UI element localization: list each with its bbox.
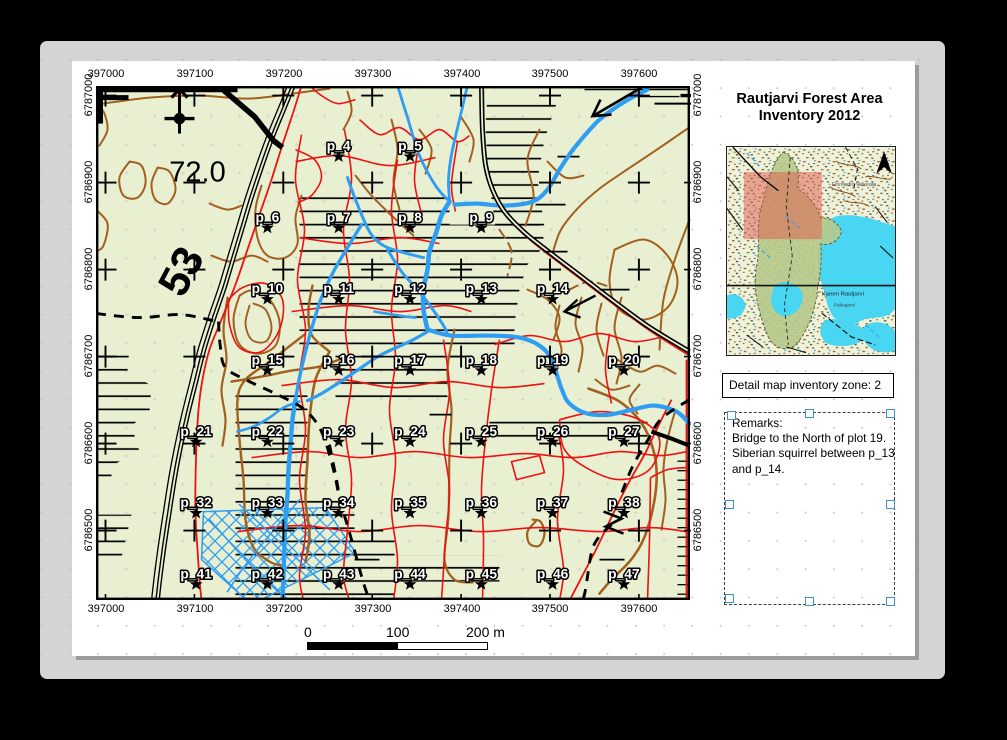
svg-text:p_36: p_36	[466, 495, 498, 510]
svg-text:p_38: p_38	[608, 495, 640, 510]
svg-text:Paikajarvi: Paikajarvi	[834, 302, 855, 308]
svg-text:p_16: p_16	[323, 353, 355, 368]
svg-text:p_37: p_37	[537, 495, 569, 510]
svg-text:p_22: p_22	[252, 424, 284, 439]
svg-text:p_45: p_45	[466, 566, 498, 581]
svg-text:p_13: p_13	[466, 281, 498, 296]
svg-text:p_26: p_26	[537, 424, 569, 439]
svg-text:p_44: p_44	[394, 566, 426, 581]
svg-text:p_35: p_35	[394, 495, 426, 510]
svg-text:p_10: p_10	[252, 281, 284, 296]
svg-text:p_24: p_24	[394, 424, 426, 439]
svg-text:p_46: p_46	[537, 566, 569, 581]
svg-text:p_6: p_6	[256, 210, 280, 225]
svg-text:Finnradio Valkeala: Finnradio Valkeala	[832, 182, 877, 188]
svg-text:p_7: p_7	[327, 210, 351, 225]
svg-text:p_4: p_4	[327, 139, 351, 154]
svg-text:p_32: p_32	[180, 495, 212, 510]
svg-text:p_34: p_34	[323, 495, 355, 510]
svg-text:p_41: p_41	[180, 566, 212, 581]
svg-text:p_42: p_42	[252, 566, 284, 581]
svg-text:p_25: p_25	[466, 424, 498, 439]
svg-text:p_8: p_8	[398, 210, 422, 225]
svg-text:p_5: p_5	[398, 139, 422, 154]
svg-text:p_23: p_23	[323, 424, 355, 439]
svg-text:p_27: p_27	[608, 424, 640, 439]
svg-text:p_21: p_21	[180, 424, 212, 439]
svg-text:p_43: p_43	[323, 566, 355, 581]
svg-text:p_18: p_18	[466, 353, 498, 368]
svg-text:p_14: p_14	[537, 281, 569, 296]
svg-text:p_47: p_47	[608, 566, 640, 581]
svg-text:Kanen Rautjarvi: Kanen Rautjarvi	[822, 291, 864, 297]
svg-text:p_20: p_20	[608, 353, 640, 368]
svg-text:72.0: 72.0	[169, 157, 225, 189]
svg-text:p_15: p_15	[252, 353, 284, 368]
svg-text:p_33: p_33	[252, 495, 284, 510]
svg-text:p_12: p_12	[394, 281, 426, 296]
svg-text:p_9: p_9	[469, 210, 493, 225]
svg-text:p_17: p_17	[394, 353, 426, 368]
svg-text:p_11: p_11	[323, 281, 354, 296]
svg-text:p_19: p_19	[537, 353, 569, 368]
